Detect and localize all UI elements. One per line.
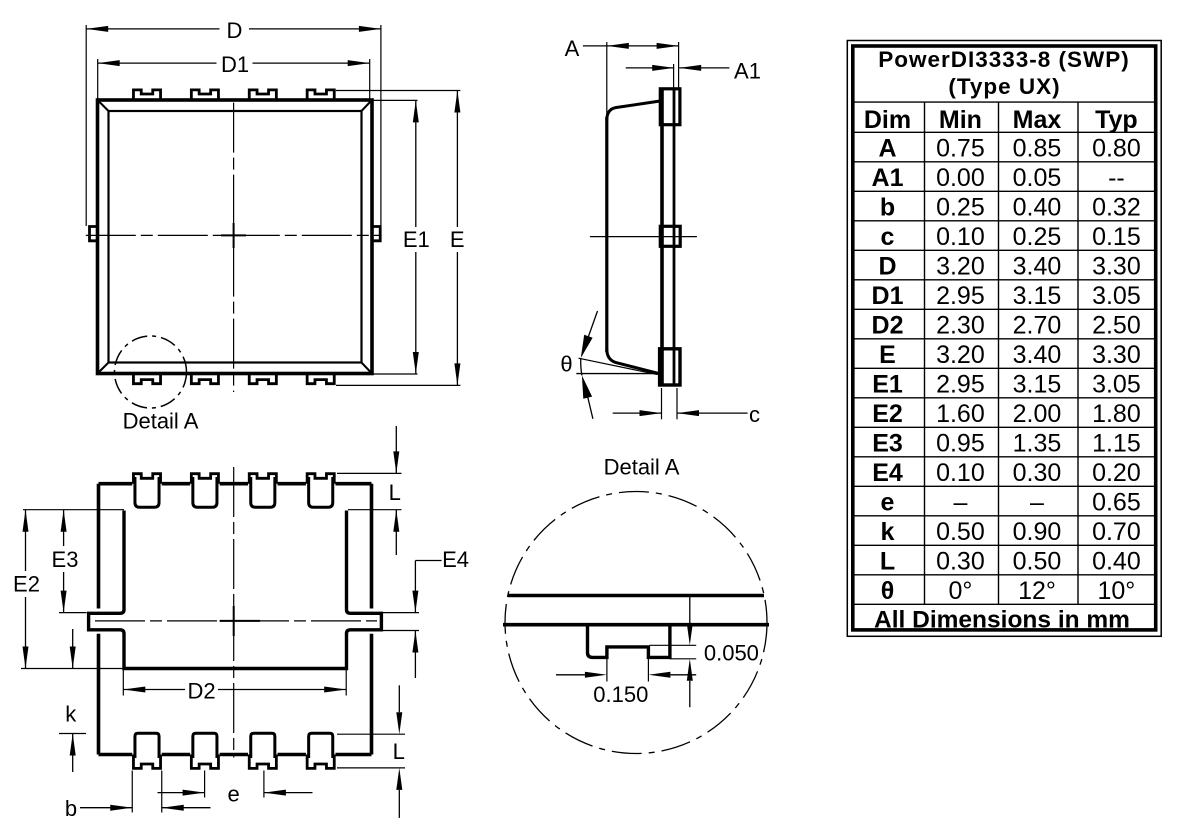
svg-text:0.30: 0.30 [936, 547, 985, 575]
svg-text:0.85: 0.85 [1013, 134, 1062, 162]
svg-text:k: k [65, 701, 77, 726]
svg-text:θ: θ [881, 577, 895, 605]
svg-text:0.70: 0.70 [1092, 518, 1141, 546]
svg-text:0.25: 0.25 [936, 193, 985, 221]
svg-text:D: D [227, 18, 243, 43]
svg-text:0.75: 0.75 [936, 134, 985, 162]
svg-text:A: A [878, 134, 896, 162]
svg-text:3.30: 3.30 [1092, 341, 1141, 369]
svg-text:3.40: 3.40 [1013, 341, 1062, 369]
svg-text:0.25: 0.25 [1013, 223, 1062, 251]
svg-text:E: E [879, 341, 896, 369]
svg-text:2.50: 2.50 [1092, 311, 1141, 339]
svg-text:0.150: 0.150 [593, 682, 648, 707]
svg-text:(Type UX): (Type UX) [948, 74, 1060, 99]
svg-text:–: – [953, 488, 967, 516]
svg-text:c: c [881, 223, 895, 251]
svg-text:3.20: 3.20 [936, 341, 985, 369]
svg-text:D: D [878, 252, 896, 280]
svg-text:–: – [1030, 488, 1044, 516]
svg-text:e: e [881, 488, 895, 516]
svg-text:3.05: 3.05 [1092, 370, 1141, 398]
svg-text:All Dimensions in mm: All Dimensions in mm [874, 606, 1130, 633]
svg-text:A1: A1 [734, 58, 761, 83]
svg-text:3.15: 3.15 [1013, 370, 1062, 398]
svg-text:E1: E1 [872, 370, 903, 398]
svg-text:0.050: 0.050 [704, 641, 759, 666]
svg-text:2.30: 2.30 [936, 311, 985, 339]
svg-text:0.30: 0.30 [1013, 459, 1062, 487]
svg-text:3.20: 3.20 [936, 252, 985, 280]
svg-text:0.50: 0.50 [936, 518, 985, 546]
svg-text:Detail A: Detail A [123, 409, 199, 434]
svg-text:L: L [389, 480, 401, 505]
svg-text:E1: E1 [403, 227, 430, 252]
svg-text:E3: E3 [872, 429, 903, 457]
svg-text:2.00: 2.00 [1013, 400, 1062, 428]
svg-text:1.15: 1.15 [1092, 429, 1141, 457]
svg-text:1.80: 1.80 [1092, 400, 1141, 428]
svg-text:3.05: 3.05 [1092, 282, 1141, 310]
svg-text:L: L [393, 739, 405, 764]
svg-text:PowerDI3333-8 (SWP): PowerDI3333-8 (SWP) [878, 47, 1130, 72]
svg-text:12°: 12° [1018, 577, 1056, 605]
svg-text:E3: E3 [52, 547, 79, 572]
svg-text:2.95: 2.95 [936, 282, 985, 310]
svg-text:0.32: 0.32 [1092, 193, 1141, 221]
svg-text:E2: E2 [13, 572, 40, 597]
svg-text:0.10: 0.10 [936, 459, 985, 487]
svg-text:1.60: 1.60 [936, 400, 985, 428]
svg-text:0.10: 0.10 [936, 223, 985, 251]
svg-text:L: L [880, 547, 895, 575]
svg-text:c: c [749, 402, 760, 427]
svg-text:E4: E4 [442, 547, 469, 572]
svg-text:E2: E2 [872, 400, 903, 428]
svg-text:2.70: 2.70 [1013, 311, 1062, 339]
svg-text:Max: Max [1013, 106, 1062, 134]
svg-text:3.40: 3.40 [1013, 252, 1062, 280]
svg-text:10°: 10° [1097, 577, 1135, 605]
svg-text:0.20: 0.20 [1092, 459, 1141, 487]
svg-text:0.00: 0.00 [936, 164, 985, 192]
svg-text:3.15: 3.15 [1013, 282, 1062, 310]
svg-text:k: k [881, 518, 895, 546]
svg-text:0.80: 0.80 [1092, 134, 1141, 162]
svg-text:0.40: 0.40 [1092, 547, 1141, 575]
svg-text:D1: D1 [872, 282, 904, 310]
svg-text:3.30: 3.30 [1092, 252, 1141, 280]
svg-text:Min: Min [939, 106, 982, 134]
svg-text:Typ: Typ [1095, 106, 1138, 134]
svg-text:b: b [880, 193, 895, 221]
svg-text:Dim: Dim [864, 106, 911, 134]
svg-text:D2: D2 [187, 678, 215, 703]
svg-text:Detail A: Detail A [604, 455, 680, 480]
svg-text:0.90: 0.90 [1013, 518, 1062, 546]
svg-text:0.50: 0.50 [1013, 547, 1062, 575]
svg-text:--: -- [1108, 164, 1125, 192]
svg-text:θ: θ [560, 352, 572, 377]
svg-text:e: e [227, 782, 239, 807]
svg-text:b: b [65, 796, 77, 821]
svg-text:0.15: 0.15 [1092, 223, 1141, 251]
svg-text:0.05: 0.05 [1013, 164, 1062, 192]
svg-text:1.35: 1.35 [1013, 429, 1062, 457]
svg-text:A1: A1 [872, 164, 904, 192]
svg-text:E4: E4 [872, 459, 903, 487]
svg-text:D1: D1 [221, 52, 249, 77]
svg-text:0.65: 0.65 [1092, 488, 1141, 516]
svg-text:A: A [565, 36, 580, 61]
svg-text:0.95: 0.95 [936, 429, 985, 457]
svg-text:E: E [450, 227, 465, 252]
svg-text:D2: D2 [872, 311, 904, 339]
svg-text:0°: 0° [948, 577, 972, 605]
svg-text:2.95: 2.95 [936, 370, 985, 398]
svg-text:0.40: 0.40 [1013, 193, 1062, 221]
